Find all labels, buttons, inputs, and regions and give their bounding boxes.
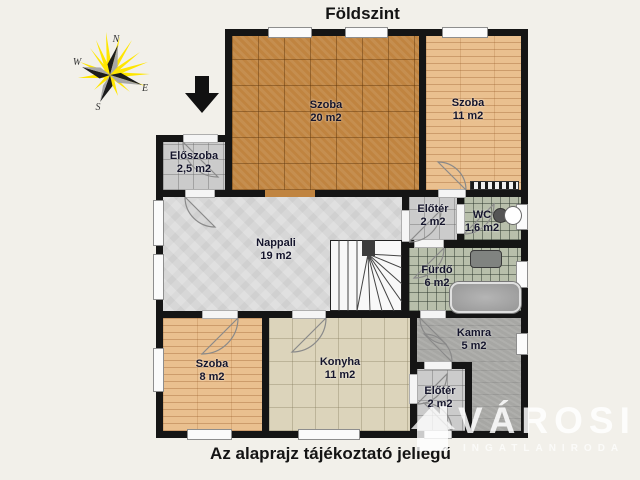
room-label-szoba-20: Szoba20 m2 bbox=[310, 99, 342, 125]
wall-szoba8-konyha-divider bbox=[262, 311, 269, 438]
room-label-szoba-11: Szoba11 m2 bbox=[452, 97, 484, 123]
compass-label-s: S bbox=[96, 102, 101, 113]
page-title: Földszint bbox=[225, 4, 500, 24]
room-label-szoba-8: Szoba8 m2 bbox=[196, 358, 228, 384]
door-nappali-eloter bbox=[401, 210, 410, 242]
floor-plan-page: Földszint Az alaprajz tájékoztató jelleg… bbox=[0, 0, 640, 480]
staircase bbox=[330, 240, 402, 311]
room-label-eloszoba: Előszoba2,5 m2 bbox=[170, 150, 218, 176]
window-szoba20-2 bbox=[345, 27, 388, 38]
compass-rose-icon: N W E S bbox=[70, 22, 162, 120]
wall-right bbox=[521, 29, 528, 438]
window-konyha bbox=[298, 429, 360, 440]
room-label-konyha: Konyha11 m2 bbox=[320, 356, 360, 382]
door-eloszoba-nappali bbox=[185, 189, 215, 198]
door-nappali-szoba8 bbox=[202, 310, 238, 319]
door-nappali-konyha bbox=[292, 310, 326, 319]
entrance-arrow-icon bbox=[185, 76, 219, 113]
door-eloter-wc bbox=[456, 204, 465, 234]
watermark-brand: VÁROSI bbox=[458, 400, 636, 442]
toilet-bowl bbox=[504, 206, 522, 225]
door-kamra-eloter bbox=[424, 361, 452, 370]
watermark-house-icon bbox=[410, 402, 456, 452]
disclaimer-text: Az alaprajz tájékoztató jellegű bbox=[148, 444, 513, 464]
room-label-kamra: Kamra5 m2 bbox=[457, 327, 491, 353]
wall-szoba-divider bbox=[419, 29, 426, 197]
room-label-nappali: Nappali19 m2 bbox=[256, 237, 296, 263]
passage-szoba20-nappali bbox=[265, 190, 315, 197]
window-szoba20-1 bbox=[268, 27, 312, 38]
window-kamra bbox=[516, 333, 528, 355]
door-szoba11-eloter bbox=[438, 189, 466, 198]
room-label-wc: WC1,6 m2 bbox=[465, 209, 499, 235]
door-furdo-kamra bbox=[420, 310, 446, 319]
bathtub bbox=[450, 282, 521, 313]
wall-mid-upper bbox=[163, 190, 521, 197]
door-entrance bbox=[183, 134, 218, 143]
window-szoba8-bottom bbox=[187, 429, 232, 440]
radiator-szoba11 bbox=[470, 181, 519, 190]
compass-label-n: N bbox=[112, 34, 121, 45]
compass-label-e: E bbox=[141, 83, 148, 94]
window-nappali-2 bbox=[153, 254, 164, 300]
room-label-eloter-upper: Előtér2 m2 bbox=[417, 203, 448, 229]
watermark-tagline: INGATLANIRODA bbox=[463, 443, 624, 454]
door-konyha-eloter bbox=[409, 374, 418, 404]
room-label-furdo: Fürdő6 m2 bbox=[421, 264, 452, 290]
sink bbox=[470, 250, 502, 268]
window-szoba11 bbox=[442, 27, 488, 38]
window-nappali-1 bbox=[153, 200, 164, 246]
door-eloter-furdo bbox=[414, 239, 444, 248]
wall-szoba20-left bbox=[225, 29, 232, 197]
window-szoba8-left bbox=[153, 348, 164, 392]
